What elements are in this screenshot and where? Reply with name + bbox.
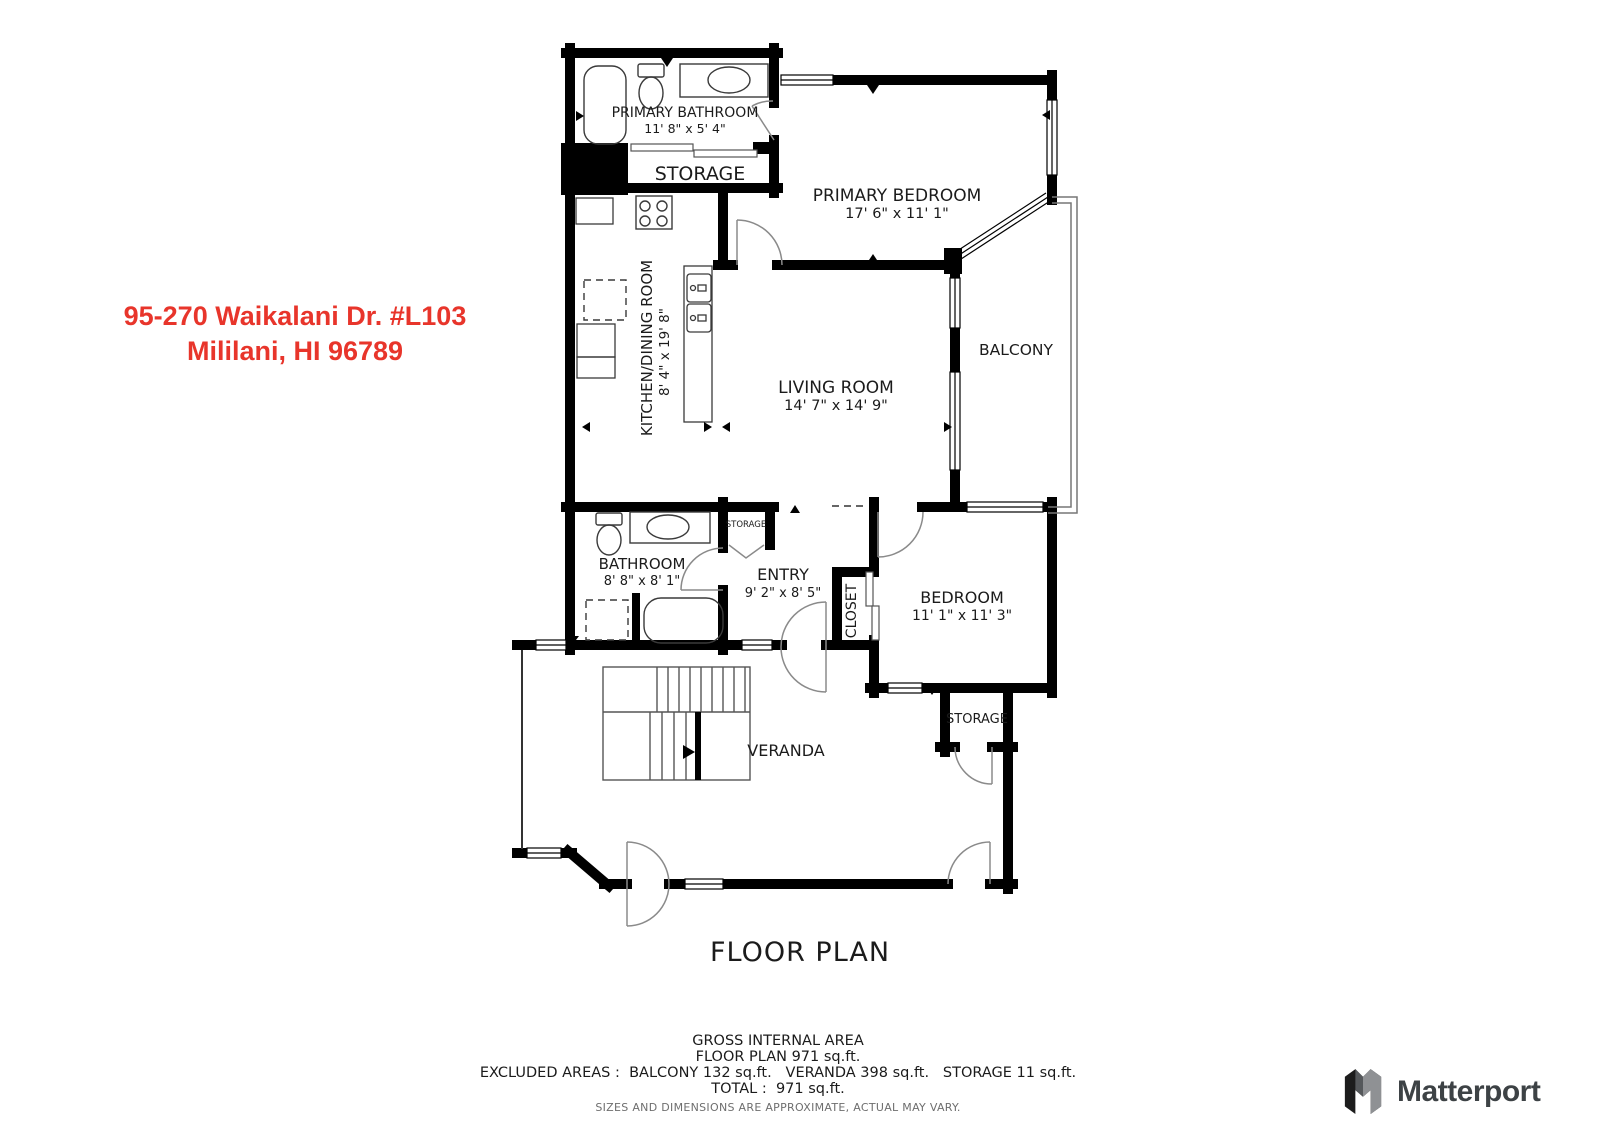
primary-toilet-icon [638,64,664,109]
entry-label: ENTRY [757,565,809,584]
storage-bedroom-label: STORAGE [946,712,1008,727]
living-room-label: LIVING ROOM [778,378,894,398]
floor-plan-drawing: PRIMARY BATHROOM 11' 8" x 5' 4" STORAGE … [0,0,1600,1130]
bedroom-label: BEDROOM [920,588,1004,607]
primary-bedroom-dims: 17' 6" x 11' 1" [845,206,949,222]
bathroom-dims: 8' 8" x 8' 1" [604,574,680,589]
primary-bedroom-label: PRIMARY BEDROOM [813,186,982,206]
bathroom-bathtub-icon [644,598,723,643]
floor-plan-area: FLOOR PLAN 971 sq.ft. [378,1049,1178,1065]
disclaimer: SIZES AND DIMENSIONS ARE APPROXIMATE, AC… [378,1100,1178,1116]
stove-icon [636,196,672,229]
balcony-label: BALCONY [979,341,1053,359]
kitchen-sink-icon [687,274,711,332]
closet-label: CLOSET [844,583,860,638]
matterport-logo-icon [1342,1068,1384,1116]
bathroom-label: BATHROOM [599,555,686,573]
kitchen-dining-label: KITCHEN/DINING ROOM [638,260,656,436]
kitchen-dining-dims: 8' 4" x 19' 8" [657,308,673,396]
gross-area-heading: GROSS INTERNAL AREA [378,1033,1178,1049]
floor-plan-title: FLOOR PLAN [710,937,890,968]
bathroom-vanity-sink-icon [630,512,710,543]
matterport-branding: Matterport [1342,1068,1540,1116]
entry-dims: 9' 2" x 8' 5" [745,586,821,601]
doors [627,101,992,926]
primary-vanity-sink-icon [680,64,768,97]
primary-bathroom-dims: 11' 8" x 5' 4" [644,121,725,136]
stairs-icon [603,667,750,780]
storage-entry-label: STORAGE [726,520,766,530]
total-area: TOTAL : 971 sq.ft. [378,1081,1178,1097]
storage-upper-label: STORAGE [655,163,745,185]
veranda-label: VERANDA [747,741,824,760]
primary-bathroom-label: PRIMARY BATHROOM [612,105,759,121]
living-room-dims: 14' 7" x 14' 9" [784,398,888,414]
bedroom-dims: 11' 1" x 11' 3" [912,608,1012,624]
bathroom-toilet-icon [596,513,622,555]
excluded-areas: EXCLUDED AREAS : BALCONY 132 sq.ft. VERA… [378,1065,1178,1081]
area-summary: GROSS INTERNAL AREA FLOOR PLAN 971 sq.ft… [378,1033,1178,1116]
matterport-wordmark: Matterport [1397,1075,1540,1109]
